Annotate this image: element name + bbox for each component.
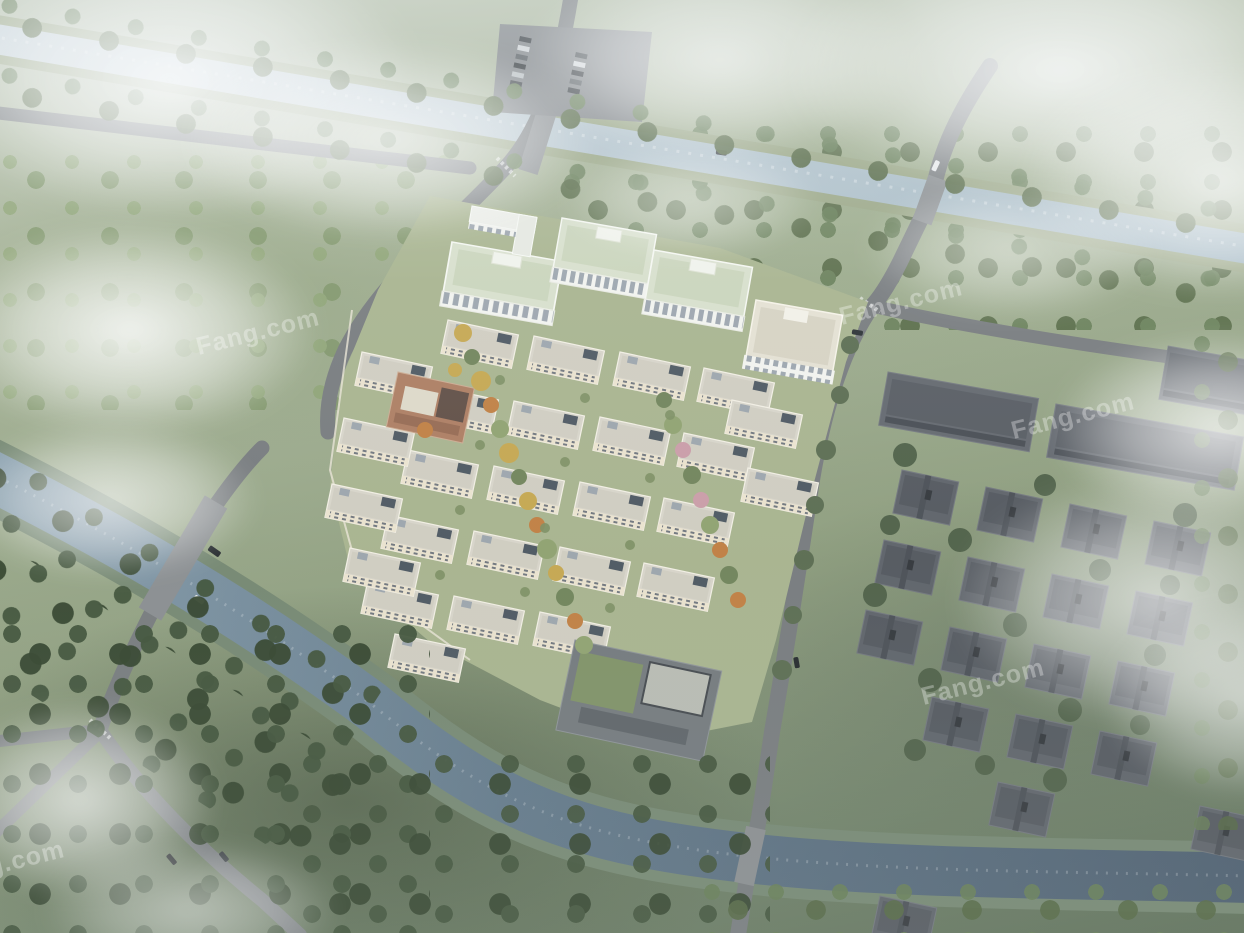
aerial-rendering-scene: Fang.com Fang.com Fang.com Fang.com Fang… bbox=[0, 0, 1244, 933]
dark-slab-building bbox=[1047, 404, 1244, 490]
parking-lot bbox=[492, 24, 652, 122]
bridge-south bbox=[744, 828, 756, 884]
road-southwest bbox=[100, 730, 300, 933]
vector-layer bbox=[0, 0, 1244, 933]
dark-slab-building bbox=[879, 372, 1039, 452]
dark-slab-building bbox=[1159, 346, 1244, 415]
new-development bbox=[325, 196, 868, 761]
road-stub-lower-left bbox=[0, 732, 100, 838]
